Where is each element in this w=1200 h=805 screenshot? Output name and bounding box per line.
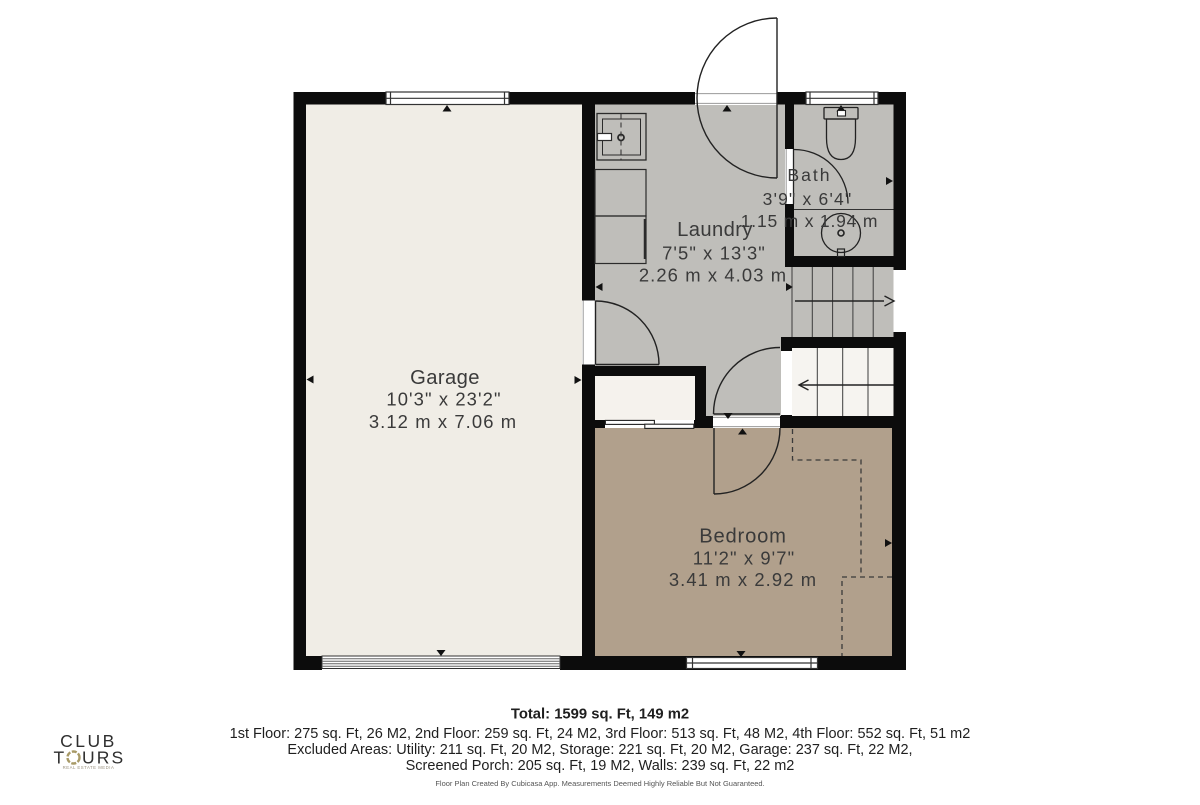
svg-text:REAL ESTATE MEDIA: REAL ESTATE MEDIA bbox=[63, 765, 115, 770]
svg-text:7'5" x 13'3": 7'5" x 13'3" bbox=[662, 243, 766, 264]
svg-text:3'9" x 6'4": 3'9" x 6'4" bbox=[763, 189, 853, 209]
svg-text:3.12 m x 7.06 m: 3.12 m x 7.06 m bbox=[369, 411, 517, 432]
svg-text:Garage: Garage bbox=[410, 367, 480, 389]
svg-text:2.26 m x 4.03 m: 2.26 m x 4.03 m bbox=[639, 265, 787, 286]
svg-text:Bedroom: Bedroom bbox=[699, 526, 787, 548]
svg-text:Bath: Bath bbox=[787, 165, 831, 185]
svg-text:Total: 1599 sq. Ft, 149 m2: Total: 1599 sq. Ft, 149 m2 bbox=[511, 707, 689, 723]
svg-text:10'3" x 23'2": 10'3" x 23'2" bbox=[386, 389, 501, 410]
svg-text:Floor Plan Created By Cubicasa: Floor Plan Created By Cubicasa App. Meas… bbox=[435, 779, 764, 788]
svg-text:Excluded Areas: Utility: 211 s: Excluded Areas: Utility: 211 sq. Ft, 20 … bbox=[287, 742, 912, 758]
svg-text:11'2" x 9'7": 11'2" x 9'7" bbox=[693, 548, 795, 569]
svg-text:3.41 m x 2.92 m: 3.41 m x 2.92 m bbox=[669, 569, 817, 590]
svg-text:1st Floor: 275 sq. Ft, 26 M2,: 1st Floor: 275 sq. Ft, 26 M2, 2nd Floor:… bbox=[230, 726, 971, 742]
svg-text:1.15 m x 1.94 m: 1.15 m x 1.94 m bbox=[741, 211, 878, 231]
svg-text:Screened Porch: 205 sq. Ft, 19: Screened Porch: 205 sq. Ft, 19 M2, Walls… bbox=[406, 758, 795, 774]
